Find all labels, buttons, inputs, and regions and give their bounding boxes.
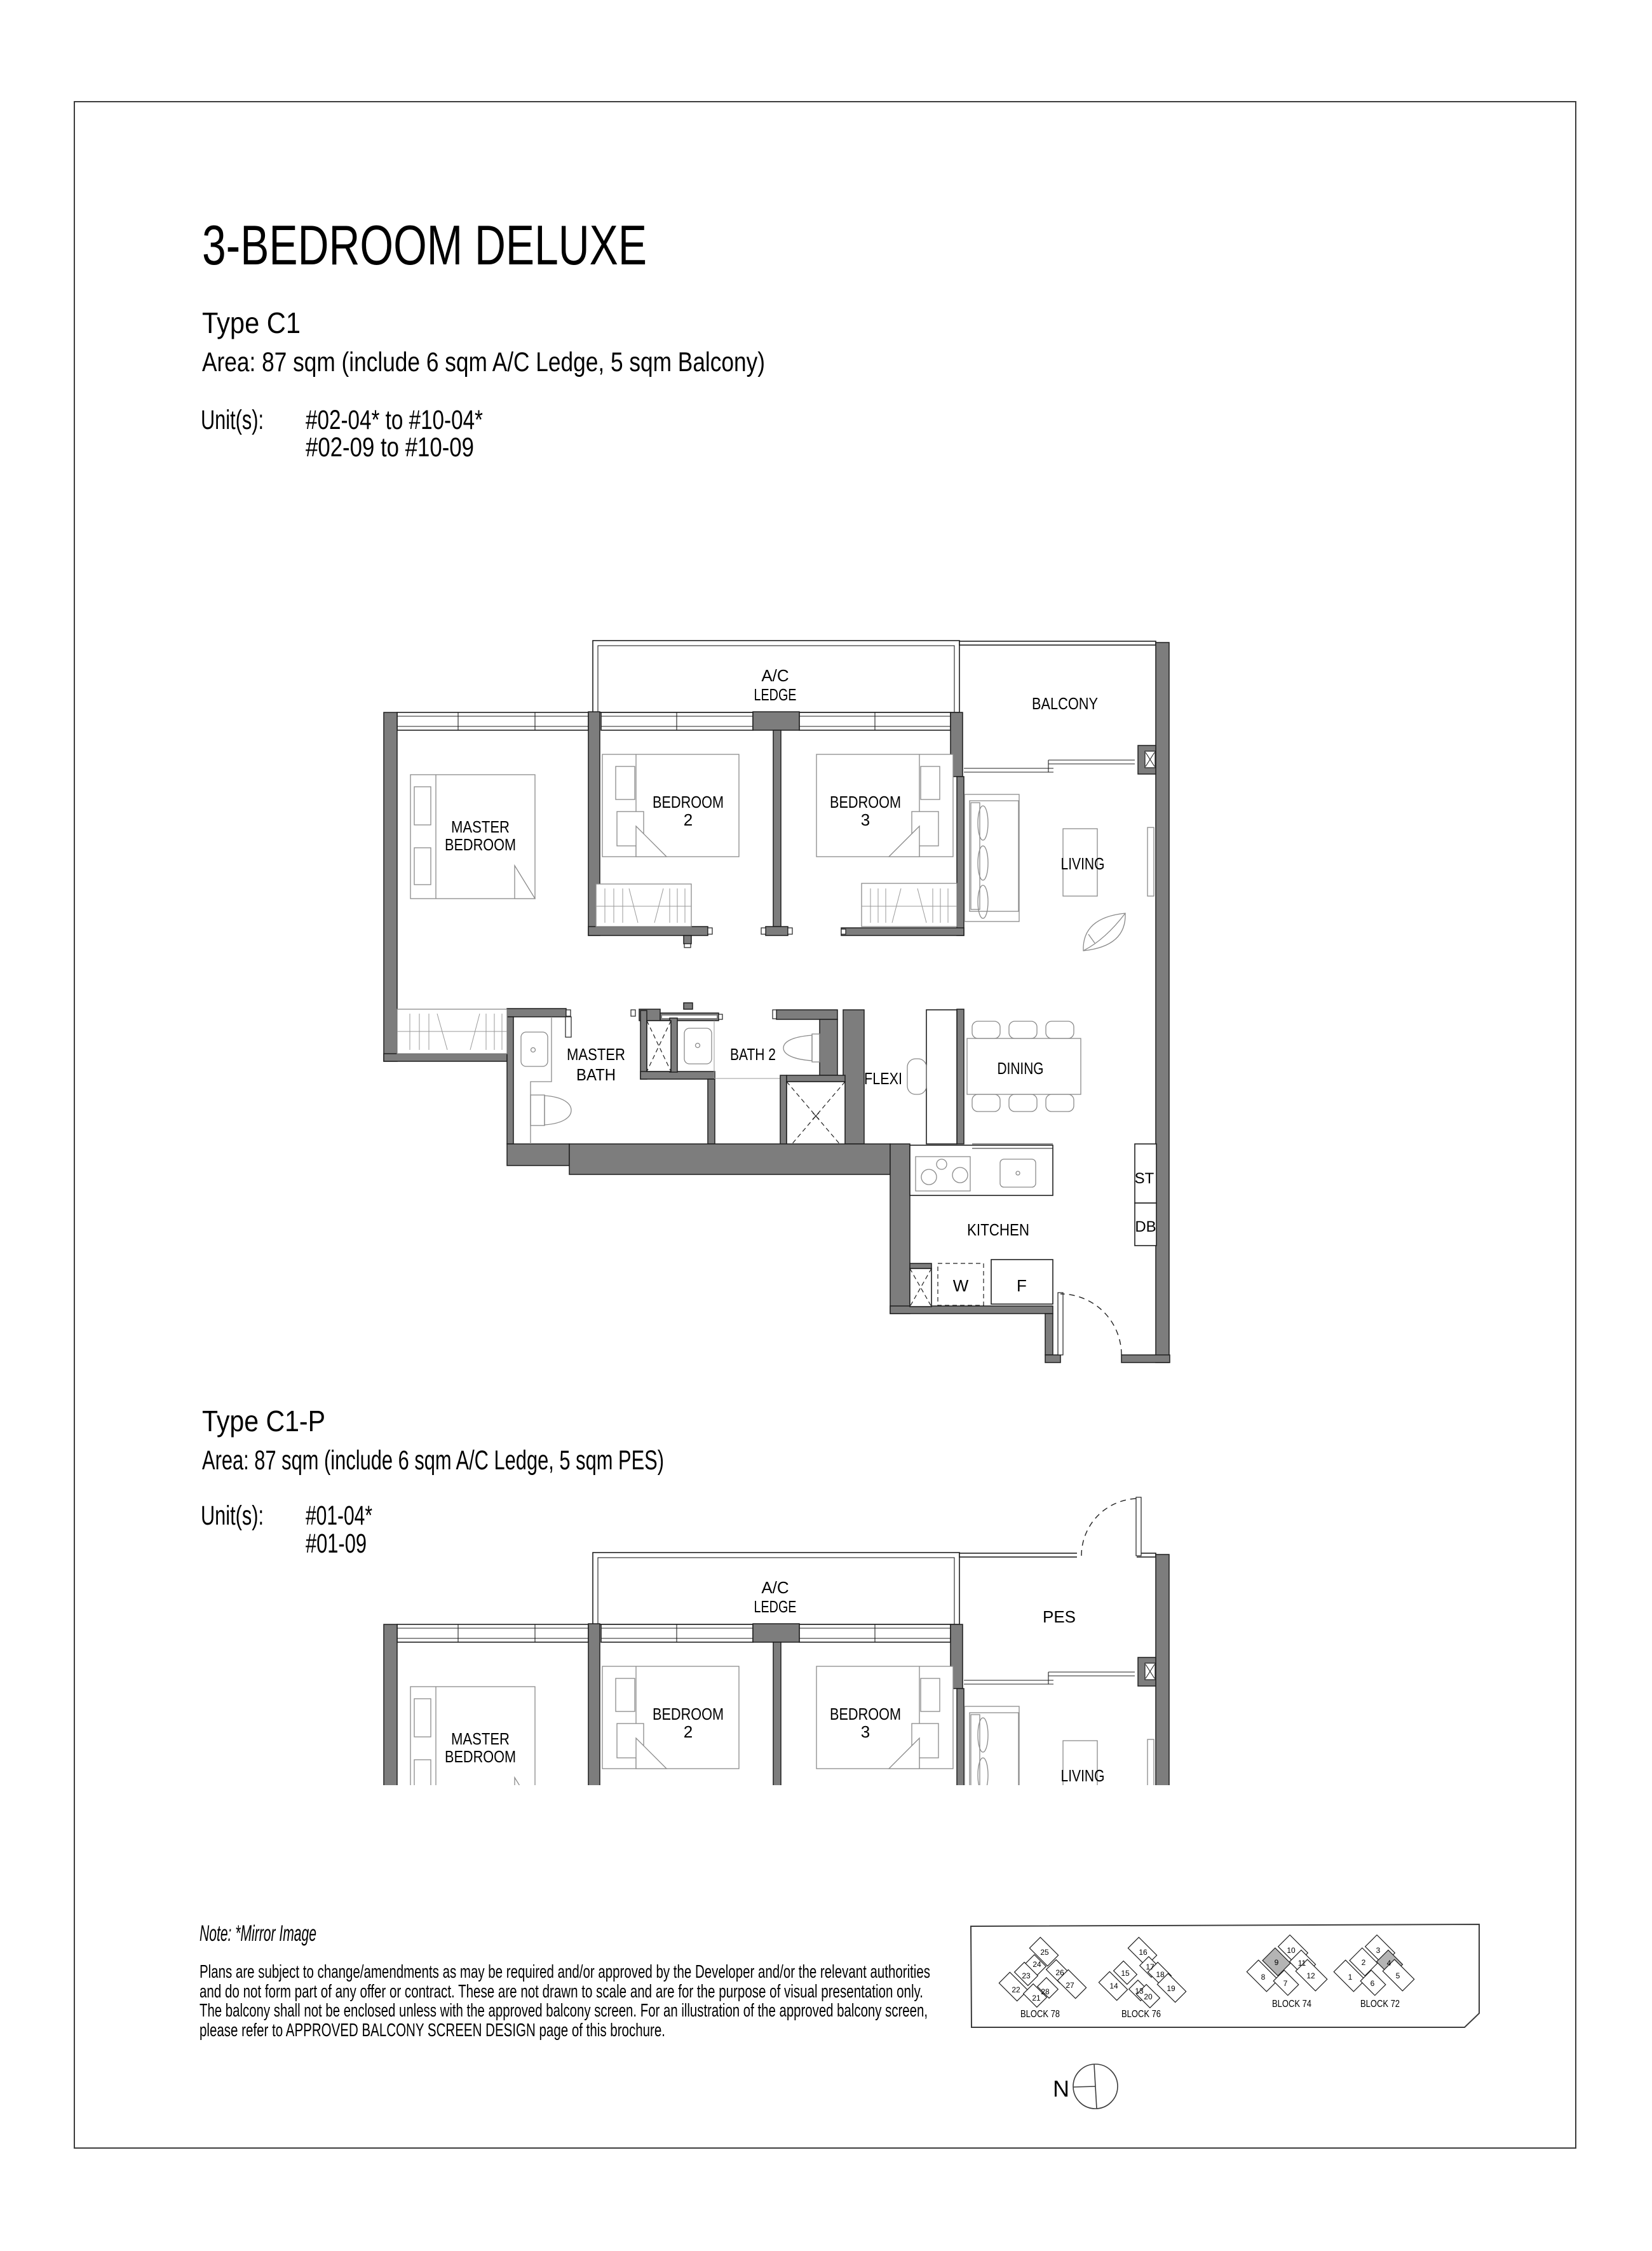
svg-text:#01-09: #01-09 [306, 1528, 367, 1559]
svg-text:and do not form part of any of: and do not form part of any offer or con… [200, 1982, 923, 2002]
svg-text:28: 28 [1041, 1987, 1050, 1996]
svg-text:11: 11 [1298, 1959, 1306, 1968]
svg-text:26: 26 [1055, 1968, 1064, 1977]
svg-text:BLOCK 76: BLOCK 76 [1121, 2009, 1161, 2020]
svg-text:#02-04* to #10-04*: #02-04* to #10-04* [306, 405, 483, 435]
svg-text:4: 4 [1387, 1959, 1391, 1968]
svg-text:12: 12 [1306, 1971, 1315, 1980]
svg-text:18: 18 [1156, 1970, 1165, 1979]
svg-text:BLOCK 72: BLOCK 72 [1360, 1999, 1400, 2010]
svg-text:14: 14 [1109, 1982, 1118, 1990]
svg-text:Type C1: Type C1 [202, 306, 301, 339]
svg-text:Plans are subject to change/am: Plans are subject to change/amendments a… [200, 1962, 930, 1982]
svg-text:5: 5 [1396, 1971, 1400, 1980]
svg-text:Unit(s):: Unit(s): [201, 405, 264, 435]
svg-text:15: 15 [1121, 1969, 1130, 1978]
svg-text:please refer to APPROVED BALCO: please refer to APPROVED BALCONY SCREEN … [200, 2020, 665, 2041]
svg-text:24: 24 [1032, 1960, 1041, 1969]
svg-text:10: 10 [1287, 1946, 1296, 1955]
svg-text:2: 2 [1362, 1958, 1366, 1967]
svg-text:22: 22 [1012, 1985, 1020, 1994]
svg-text:Area: 87 sqm (include 6 sqm A/: Area: 87 sqm (include 6 sqm A/C Ledge, 5… [202, 1445, 664, 1476]
svg-text:BLOCK 74: BLOCK 74 [1272, 1999, 1311, 2010]
svg-text:27: 27 [1066, 1981, 1074, 1990]
svg-text:3-BEDROOM DELUXE: 3-BEDROOM DELUXE [202, 214, 647, 276]
svg-text:25: 25 [1040, 1948, 1049, 1957]
svg-text:8: 8 [1261, 1973, 1266, 1982]
svg-text:BALCONY: BALCONY [1032, 694, 1098, 713]
svg-text:21: 21 [1032, 1994, 1041, 2003]
svg-text:N: N [1053, 2076, 1069, 2102]
svg-text:#02-09 to #10-09: #02-09 to #10-09 [306, 432, 474, 463]
svg-text:20: 20 [1144, 1992, 1153, 2001]
svg-text:BLOCK 78: BLOCK 78 [1020, 2009, 1060, 2020]
svg-text:Type C1-P: Type C1-P [202, 1404, 325, 1438]
svg-text:23: 23 [1022, 1971, 1031, 1980]
svg-text:Area: 87 sqm (include 6 sqm A/: Area: 87 sqm (include 6 sqm A/C Ledge, 5… [202, 347, 765, 377]
svg-text:16: 16 [1139, 1948, 1148, 1957]
svg-text:PES: PES [1043, 1607, 1076, 1626]
svg-text:9: 9 [1275, 1958, 1279, 1967]
svg-text:#01-04*: #01-04* [306, 1500, 372, 1531]
svg-text:3: 3 [1376, 1946, 1381, 1955]
svg-text:17: 17 [1146, 1962, 1154, 1971]
svg-text:6: 6 [1371, 1979, 1375, 1988]
svg-text:The balcony shall not be enclo: The balcony shall not be enclosed unless… [200, 2001, 928, 2021]
svg-text:Note: *Mirror Image: Note: *Mirror Image [200, 1921, 316, 1946]
svg-text:13: 13 [1135, 1987, 1144, 1996]
svg-text:19: 19 [1167, 1984, 1175, 1993]
svg-text:7: 7 [1283, 1979, 1288, 1988]
svg-text:Unit(s):: Unit(s): [201, 1500, 264, 1531]
svg-text:1: 1 [1348, 1973, 1353, 1982]
